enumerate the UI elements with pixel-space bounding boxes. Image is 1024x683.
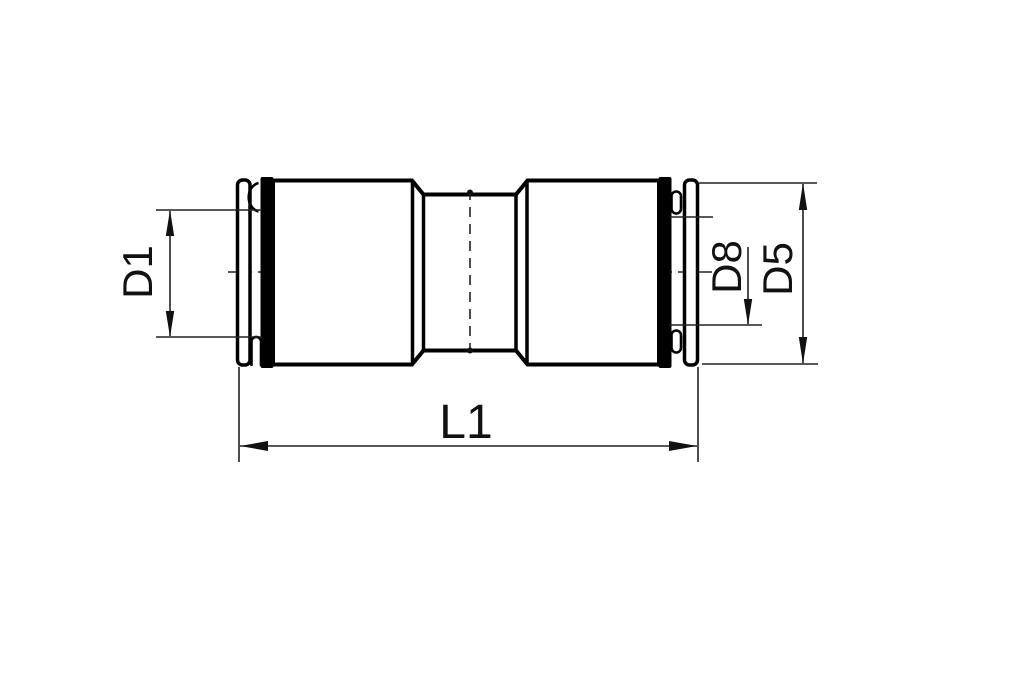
d8-arrow-down	[744, 299, 752, 325]
l1-arrow-right	[669, 441, 697, 451]
right-collet-top-claw	[672, 192, 682, 214]
joint-line-top-dot	[467, 190, 473, 196]
right-collet-bottom-claw	[672, 331, 682, 353]
joint-line-bottom-dot	[467, 348, 473, 354]
d1-label: D1	[114, 245, 161, 299]
d1-arrow-up	[166, 210, 174, 236]
right-release-ring	[685, 180, 698, 365]
d8-label: D8	[703, 240, 750, 294]
dimension-l1: L1	[239, 367, 698, 462]
fitting-body-outline	[273, 181, 659, 365]
left-collet-bottom-claw	[252, 337, 262, 366]
l1-arrow-left	[240, 441, 268, 451]
d1-arrow-down	[166, 311, 174, 337]
right-collet-flange	[659, 177, 672, 368]
d5-arrow-down	[799, 337, 807, 364]
drawing-canvas: D1 D8 D5 L1	[0, 0, 1024, 683]
d5-arrow-up	[799, 183, 807, 210]
technical-drawing: D1 D8 D5 L1	[0, 0, 1024, 683]
d5-label: D5	[754, 242, 801, 296]
left-collet-flange	[261, 177, 274, 368]
l1-label: L1	[439, 396, 492, 449]
